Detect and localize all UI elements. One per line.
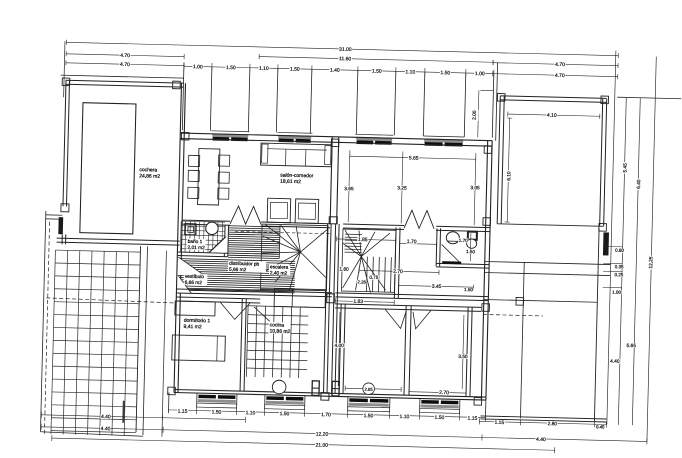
svg-text:1.50: 1.50 — [364, 413, 374, 419]
svg-text:6,66 m2: 6,66 m2 — [185, 280, 203, 286]
svg-text:5.45: 5.45 — [622, 163, 628, 173]
svg-text:3.50: 3.50 — [458, 354, 468, 360]
svg-text:18,61 m2: 18,61 m2 — [280, 179, 301, 186]
svg-text:1.60: 1.60 — [339, 266, 349, 272]
svg-text:1.50: 1.50 — [372, 69, 382, 75]
svg-text:5.65: 5.65 — [409, 155, 419, 161]
svg-text:0.75: 0.75 — [369, 275, 379, 280]
svg-text:6.10: 6.10 — [506, 171, 512, 181]
svg-text:1.50: 1.50 — [290, 67, 300, 73]
svg-text:12,25: 12,25 — [648, 256, 654, 268]
svg-text:0.35: 0.35 — [615, 264, 624, 269]
svg-text:vestíbulo: vestíbulo — [185, 274, 205, 280]
svg-text:1.50: 1.50 — [212, 409, 222, 415]
svg-text:4.70: 4.70 — [120, 53, 130, 59]
svg-text:24,86 m2: 24,86 m2 — [139, 173, 160, 180]
svg-text:1.50: 1.50 — [280, 411, 290, 417]
svg-text:1.00: 1.00 — [193, 64, 203, 70]
svg-text:1.50: 1.50 — [226, 65, 236, 71]
svg-text:1.10: 1.10 — [400, 414, 410, 420]
svg-text:1.10: 1.10 — [405, 69, 415, 75]
svg-text:4.40: 4.40 — [536, 437, 546, 443]
svg-text:31.00: 31.00 — [339, 47, 352, 53]
svg-text:4.10: 4.10 — [547, 113, 557, 119]
svg-text:11.60: 11.60 — [339, 56, 352, 62]
svg-text:2,40 m2: 2,40 m2 — [270, 270, 288, 276]
svg-text:3.05: 3.05 — [470, 185, 480, 191]
svg-text:1.00: 1.00 — [612, 290, 621, 295]
svg-text:3.25: 3.25 — [397, 185, 407, 191]
svg-text:1.40: 1.40 — [330, 67, 340, 73]
svg-text:1.70: 1.70 — [407, 239, 417, 245]
svg-text:1.50: 1.50 — [466, 249, 476, 254]
svg-text:1.15: 1.15 — [495, 420, 505, 426]
svg-text:0.45: 0.45 — [596, 424, 605, 429]
svg-text:escalera: escalera — [270, 264, 289, 270]
svg-text:1.70: 1.70 — [459, 238, 469, 243]
svg-text:2.70: 2.70 — [393, 269, 403, 275]
svg-text:2.00: 2.00 — [472, 110, 478, 120]
svg-text:0.25: 0.25 — [615, 272, 624, 277]
svg-text:6.40: 6.40 — [636, 179, 642, 189]
svg-text:4.40: 4.40 — [610, 359, 620, 365]
svg-text:4.40: 4.40 — [101, 414, 111, 420]
svg-text:2.80: 2.80 — [548, 421, 558, 427]
svg-text:2.85: 2.85 — [364, 387, 373, 392]
svg-text:2,01 m2: 2,01 m2 — [187, 245, 205, 251]
svg-text:distribuidor pb: distribuidor pb — [229, 261, 260, 268]
svg-text:1.15: 1.15 — [467, 416, 477, 422]
svg-text:10,86 m2: 10,86 m2 — [269, 328, 290, 335]
svg-text:4.40: 4.40 — [101, 426, 111, 432]
svg-text:1.85: 1.85 — [358, 237, 368, 243]
svg-text:1.15: 1.15 — [178, 409, 188, 415]
svg-text:baño 1: baño 1 — [188, 239, 203, 245]
svg-text:3.65: 3.65 — [344, 186, 354, 192]
svg-text:5,66 m2: 5,66 m2 — [229, 267, 247, 273]
svg-text:5.65: 5.65 — [627, 343, 637, 349]
svg-text:4.70: 4.70 — [555, 73, 565, 79]
svg-text:1.70: 1.70 — [321, 412, 331, 418]
svg-text:21.00: 21.00 — [315, 442, 328, 448]
svg-text:12.20: 12.20 — [316, 431, 329, 437]
svg-text:1.50: 1.50 — [435, 415, 445, 421]
svg-text:9,41 m2: 9,41 m2 — [184, 324, 202, 330]
svg-text:2.70: 2.70 — [439, 390, 449, 396]
svg-text:3.45: 3.45 — [432, 284, 442, 290]
svg-text:1.10: 1.10 — [246, 410, 256, 416]
svg-text:4.70: 4.70 — [555, 62, 565, 68]
svg-text:4.00: 4.00 — [334, 343, 344, 349]
svg-text:2.26: 2.26 — [357, 279, 366, 284]
svg-text:1.50: 1.50 — [440, 70, 450, 76]
svg-text:1.10: 1.10 — [259, 66, 269, 72]
svg-text:1.50: 1.50 — [464, 287, 474, 292]
svg-text:1.00: 1.00 — [475, 71, 485, 77]
svg-text:4.70: 4.70 — [120, 62, 130, 68]
svg-text:0.80: 0.80 — [615, 248, 624, 253]
